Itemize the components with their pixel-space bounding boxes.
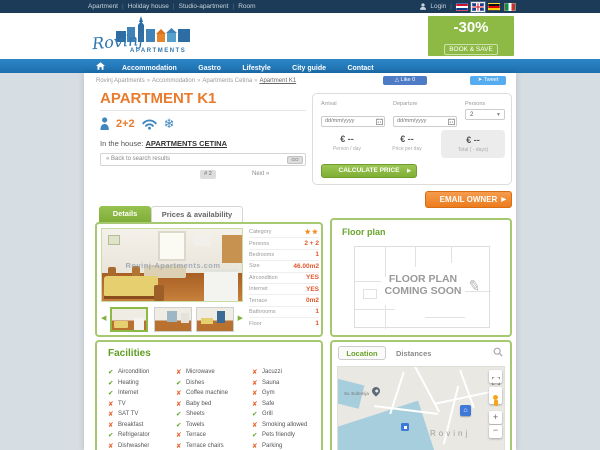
row-label: Bathrooms: [249, 309, 276, 315]
availability-icon: ✘: [176, 431, 183, 439]
facility-item: ✘Gym: [252, 388, 318, 399]
back-go-button[interactable]: GO: [287, 156, 303, 164]
location-map[interactable]: Sv. Eufemija ⌂ Rovinj Google + −: [337, 366, 505, 450]
photo-window: [158, 231, 186, 261]
facility-item: ✘Coffee machine: [176, 388, 252, 399]
calculate-price-button[interactable]: CALCULATE PRICE ▶: [321, 164, 417, 178]
table-row: Bedrooms1: [249, 250, 319, 261]
facility-item: ✘TV: [108, 399, 176, 410]
facility-item: ✘Jacuzzi: [252, 367, 318, 378]
map-poi-label: Sv. Eufemija: [344, 391, 369, 396]
german-flag[interactable]: [488, 3, 500, 11]
table-row: Bathrooms1: [249, 307, 319, 318]
arrow-right-icon: ▶: [501, 193, 506, 208]
availability-icon: ✔: [176, 379, 183, 387]
availability-icon: ✘: [252, 421, 259, 429]
facility-item: ✘Terrace chairs: [176, 441, 252, 450]
tab-location[interactable]: Location: [338, 346, 386, 360]
calculate-label: CALCULATE PRICE: [339, 167, 400, 174]
facility-label: Baby bed: [186, 401, 211, 407]
map-road: [459, 370, 475, 408]
house-link[interactable]: APARTMENTS CETINA: [145, 139, 227, 148]
site-logo[interactable]: Rovinj APARTMENTS: [92, 15, 212, 57]
breadcrumb-separator: »: [197, 78, 200, 84]
photo-table: [104, 276, 158, 296]
facility-item: ✘Sauna: [252, 378, 318, 389]
booking-widget: Arrival Departure Persons 2 ▼ € -- Perso…: [312, 93, 512, 185]
main-nav: Accommodation Gastro Lifestyle City guid…: [0, 59, 600, 73]
person-day-value: € --: [319, 134, 375, 144]
floorplan-title: Floor plan: [342, 227, 386, 237]
facility-label: Heating: [118, 380, 139, 386]
topbar-link-studio-apartment[interactable]: Studio-apartment: [179, 3, 229, 10]
logo-subtitle: APARTMENTS: [130, 48, 186, 54]
facility-label: Grill: [262, 411, 273, 417]
availability-icon: ✘: [252, 400, 259, 408]
topbar-link-apartment[interactable]: Apartment: [88, 3, 118, 10]
floorplan-panel: Floor plan FLOOR PLAN COMING SOON ✎: [330, 218, 512, 337]
user-icon: [420, 3, 426, 10]
availability-icon: ✔: [108, 389, 115, 397]
photo-picture-frame: [108, 235, 120, 245]
thumbnail-1[interactable]: [110, 307, 148, 332]
map-city-label: Rovinj: [430, 429, 470, 438]
departure-label: Departure: [393, 101, 457, 107]
magnifier-icon[interactable]: [493, 347, 503, 357]
facility-item: ✘Safe: [252, 399, 318, 410]
facility-item: ✘Smoking allowed: [252, 420, 318, 431]
breadcrumb-separator: »: [254, 78, 257, 84]
facilities-title: Facilities: [108, 348, 151, 359]
availability-icon: ✔: [176, 421, 183, 429]
page-title: APARTMENT K1: [100, 90, 216, 107]
table-row: Floor1: [249, 318, 319, 329]
breadcrumb-current[interactable]: Apartment K1: [259, 78, 296, 84]
availability-icon: ✘: [176, 368, 183, 376]
facility-item: ✔Sheets: [176, 409, 252, 420]
title-divider: [100, 110, 306, 111]
thumb-door: [217, 311, 225, 323]
capacity-label: 2+2: [116, 118, 135, 130]
wifi-icon: [142, 118, 157, 130]
back-label: « Back to search results: [106, 156, 170, 162]
row-label: Terrace: [249, 298, 267, 304]
table-row: Size46.00m2: [249, 261, 319, 272]
thumb-table: [114, 321, 128, 328]
like-label: Like 0: [401, 77, 416, 83]
promo-percent: -30%: [428, 18, 514, 38]
table-row: Terrace0m2: [249, 295, 319, 306]
calendar-icon[interactable]: [376, 118, 383, 125]
facility-label: Breakfast: [118, 422, 143, 428]
facility-label: Sauna: [262, 380, 279, 386]
availability-icon: ✘: [108, 442, 115, 450]
availability-icon: ✘: [252, 368, 259, 376]
streetview-pegman-button[interactable]: [489, 387, 502, 404]
italian-flag[interactable]: [504, 3, 516, 11]
facility-item: ✔Grill: [252, 409, 318, 420]
promo-text: BOOK & SAVE: [444, 44, 498, 55]
map-zoom-out-button[interactable]: −: [489, 425, 502, 438]
topbar-link-holiday-house[interactable]: Holiday house: [128, 3, 169, 10]
amenity-icons: 2+2 ❄: [100, 115, 175, 132]
next-listing-link[interactable]: Next »: [252, 171, 269, 177]
facility-label: Smoking allowed: [262, 422, 307, 428]
floorplan-sketch: FLOOR PLAN COMING SOON ✎: [354, 246, 490, 328]
facility-item: ✔Aircondition: [108, 367, 176, 378]
site-header: Rovinj APARTMENTS -30% BOOK & SAVE: [0, 13, 600, 59]
house-prefix: In the house:: [100, 139, 143, 148]
home-icon[interactable]: [96, 62, 105, 70]
breadcrumb-home[interactable]: Rovinj Apartments: [96, 78, 145, 84]
facility-label: Gym: [262, 390, 275, 396]
row-label: Category: [249, 229, 271, 235]
facility-label: Dishes: [186, 380, 204, 386]
category-stars: ★★: [304, 228, 319, 236]
row-label: Persons: [249, 241, 269, 247]
facility-item: ✘Terrace: [176, 430, 252, 441]
login-link[interactable]: Login: [430, 0, 446, 13]
main-content: Rovinj Apartments»Accommodation»Apartmen…: [84, 73, 516, 450]
row-value: 1: [315, 320, 319, 327]
photo-cabinet: [222, 235, 242, 263]
tab-prices-availability[interactable]: Prices & availability: [151, 206, 243, 222]
row-value: 46.00m2: [293, 263, 319, 270]
facility-label: Aircondition: [118, 369, 149, 375]
row-value: YES: [306, 274, 319, 281]
row-label: Internet: [249, 286, 268, 292]
details-panel: Rovinj-Apartments.com ◀ ▶ C: [95, 222, 323, 337]
price-day-label: Price per day: [379, 146, 435, 152]
availability-icon: ✘: [108, 400, 115, 408]
row-value: YES: [306, 286, 319, 293]
facility-item: ✘Dishwasher: [108, 441, 176, 450]
page-badge[interactable]: # 2: [200, 170, 216, 179]
availability-icon: ✘: [252, 442, 259, 450]
total-value: € --: [441, 135, 505, 145]
breadcrumb-separator: »: [147, 78, 150, 84]
table-row: AirconditionYES: [249, 273, 319, 284]
topbar-divider: |: [122, 3, 124, 10]
availability-icon: ✘: [176, 389, 183, 397]
row-label: Bedrooms: [249, 252, 274, 258]
topbar-link-room[interactable]: Room: [238, 3, 255, 10]
facility-item: ✘Baby bed: [176, 399, 252, 410]
facility-item: ✘SAT TV: [108, 409, 176, 420]
availability-icon: ✔: [252, 410, 259, 418]
persons-select[interactable]: 2 ▼: [465, 109, 505, 120]
facilities-panel: Facilities ✔Aircondition ✔Heating ✔Inter…: [95, 340, 323, 450]
email-owner-button[interactable]: EMAIL OWNER ▶: [425, 191, 512, 208]
row-label: Floor: [249, 321, 262, 327]
availability-icon: ✔: [108, 368, 115, 376]
house-line: In the house: APARTMENTS CETINA: [100, 139, 227, 148]
arrival-label: Arrival: [321, 101, 385, 107]
facility-item: ✔Refrigerator: [108, 430, 176, 441]
topbar-divider: |: [232, 3, 234, 10]
facility-item: ✔Towels: [176, 420, 252, 431]
facility-label: SAT TV: [118, 411, 138, 417]
facility-label: Safe: [262, 401, 274, 407]
row-label: Size: [249, 263, 260, 269]
availability-icon: ✔: [252, 431, 259, 439]
thumbnail-strip: ◀ ▶: [101, 307, 243, 332]
facility-label: Jacuzzi: [262, 369, 282, 375]
facility-label: Pets friendly: [262, 432, 295, 438]
row-value: 0m2: [306, 297, 319, 304]
thumb-stove: [134, 318, 144, 330]
tweet-label: Tweet: [484, 77, 499, 83]
facility-item: ✔Dishes: [176, 378, 252, 389]
photo-stove: [204, 269, 238, 302]
row-label: Aircondition: [249, 275, 278, 281]
person-day-label: Person / day: [319, 146, 375, 152]
availability-icon: ✘: [176, 442, 183, 450]
croatian-flag[interactable]: [456, 3, 468, 11]
table-row: Persons2 + 2: [249, 238, 319, 249]
back-to-results-bar[interactable]: « Back to search results GO: [100, 153, 306, 166]
table-row: InternetYES: [249, 284, 319, 295]
availability-icon: ✔: [108, 379, 115, 387]
facility-item: ✘Microwave: [176, 367, 252, 378]
top-bar: Apartment|Holiday house|Studio-apartment…: [0, 0, 600, 13]
price-total-box: € -- Total ( - days): [441, 130, 505, 158]
fullscreen-button[interactable]: [489, 370, 502, 383]
gallery-prev-icon[interactable]: ◀: [101, 314, 106, 322]
availability-icon: ✘: [252, 389, 259, 397]
table-row: Category★★: [249, 227, 319, 238]
breadcrumb: Rovinj Apartments»Accommodation»Apartmen…: [96, 78, 296, 84]
price-per-day: € -- Price per day: [379, 134, 435, 152]
map-blue-marker-icon[interactable]: [401, 423, 409, 431]
facility-label: Parking: [262, 443, 282, 449]
topbar-divider: |: [450, 0, 452, 13]
facility-item: ✘Breakfast: [108, 420, 176, 431]
topbar-divider: |: [173, 3, 175, 10]
chevron-down-icon: ▼: [496, 110, 501, 120]
tweet-button[interactable]: ➤ Tweet: [470, 76, 506, 85]
row-value: 2 + 2: [304, 240, 319, 247]
persons-label: Persons: [465, 101, 505, 107]
thumbnail-2[interactable]: [154, 307, 192, 332]
facebook-like-button[interactable]: △ Like 0: [383, 76, 427, 85]
facility-label: Terrace chairs: [186, 443, 224, 449]
availability-icon: ✘: [176, 400, 183, 408]
price-person-day: € -- Person / day: [319, 134, 375, 152]
availability-icon: ✘: [108, 410, 115, 418]
photo-picture-frame: [194, 234, 210, 246]
facility-label: Towels: [186, 422, 204, 428]
apartment-photo[interactable]: Rovinj-Apartments.com: [101, 228, 243, 302]
price-day-value: € --: [379, 134, 435, 144]
lodging-marker-icon[interactable]: ⌂: [460, 405, 471, 416]
facility-label: Microwave: [186, 369, 215, 375]
gallery-next-icon[interactable]: ▶: [238, 314, 243, 322]
promo-banner[interactable]: -30% BOOK & SAVE: [428, 16, 514, 56]
thumb-furniture: [167, 311, 177, 322]
facility-label: Internet: [118, 390, 138, 396]
map-road: [434, 391, 489, 405]
tab-details[interactable]: Details: [99, 206, 151, 222]
arrow-right-icon: ▶: [407, 165, 411, 177]
map-zoom-in-button[interactable]: +: [489, 411, 502, 424]
facility-label: Refrigerator: [118, 432, 150, 438]
aircondition-snowflake-icon: ❄: [164, 117, 175, 130]
email-owner-label: EMAIL OWNER: [440, 195, 498, 204]
location-panel: Location Distances Sv. Eufemija ⌂ Rovinj…: [330, 340, 512, 450]
facility-label: Dishwasher: [118, 443, 149, 449]
row-value: 1: [315, 251, 319, 258]
thumbnail-3[interactable]: [196, 307, 234, 332]
photo-gallery: Rovinj-Apartments.com ◀ ▶: [101, 228, 243, 332]
row-value: 1: [315, 308, 319, 315]
photo-chair: [154, 285, 164, 301]
thumb-furniture: [181, 313, 189, 323]
twitter-bird-icon: ➤: [478, 77, 483, 83]
breadcrumb-apartments-cetina[interactable]: Apartments Cetina: [202, 78, 252, 84]
calendar-icon[interactable]: [448, 118, 455, 125]
facility-label: Sheets: [186, 411, 205, 417]
photo-watermark: Rovinj-Apartments.com: [102, 261, 243, 270]
availability-icon: ✔: [176, 410, 183, 418]
availability-icon: ✘: [108, 421, 115, 429]
pegman-icon: [493, 395, 498, 400]
details-table: Category★★ Persons2 + 2 Bedrooms1 Size46…: [249, 227, 319, 330]
listing-pager: # 2 Next »: [100, 170, 306, 180]
person-icon: [100, 117, 113, 130]
breadcrumb-accommodation[interactable]: Accommodation: [152, 78, 195, 84]
thumbs-up-icon: △: [395, 77, 399, 83]
thumb-table: [201, 318, 213, 324]
map-pin-icon[interactable]: [370, 385, 381, 396]
facility-label: Terrace: [186, 432, 206, 438]
fullscreen-icon: [492, 377, 500, 385]
tab-distances[interactable]: Distances: [396, 349, 431, 358]
availability-icon: ✘: [252, 379, 259, 387]
facilities-grid: ✔Aircondition ✔Heating ✔Internet ✘TV ✘SA…: [108, 367, 318, 450]
facility-item: ✘Parking: [252, 441, 318, 450]
facility-label: Coffee machine: [186, 390, 228, 396]
english-flag[interactable]: [472, 3, 484, 11]
facility-label: TV: [118, 401, 126, 407]
total-label: Total ( - days): [441, 147, 505, 153]
facility-item: ✔Internet: [108, 388, 176, 399]
availability-icon: ✔: [108, 431, 115, 439]
facility-item: ✔Heating: [108, 378, 176, 389]
facility-item: ✔Pets friendly: [252, 430, 318, 441]
persons-value: 2: [470, 112, 473, 118]
